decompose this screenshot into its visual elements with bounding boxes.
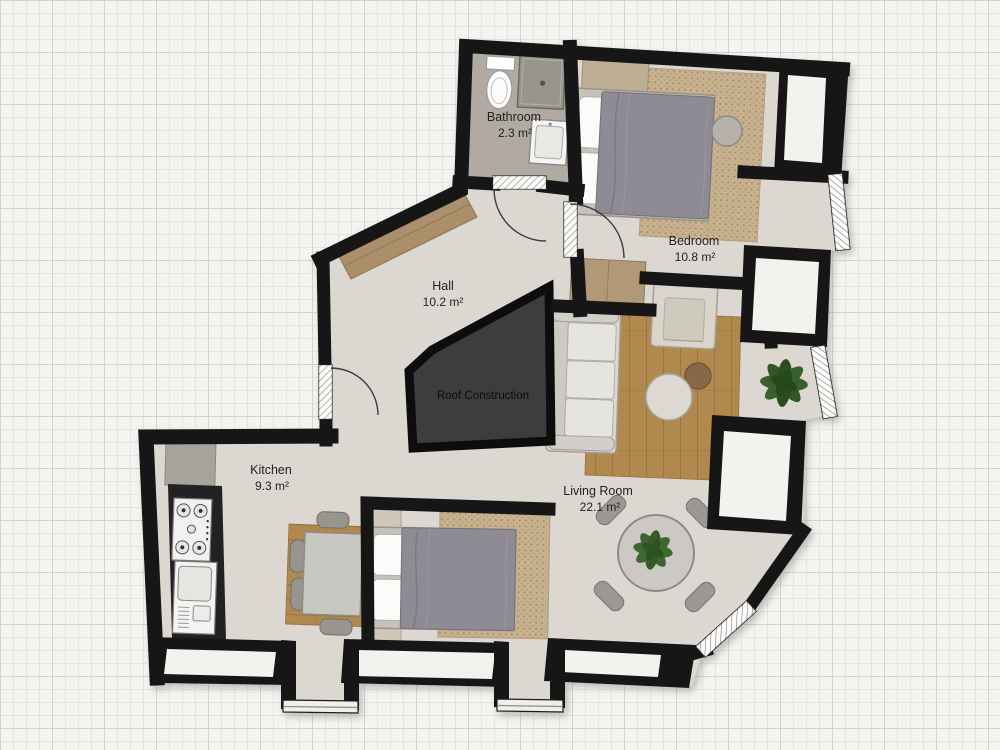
bedroom-window-niche	[784, 75, 826, 163]
kitchen-area: 9.3 m²	[255, 479, 289, 493]
armchair	[651, 282, 718, 349]
right-window-niche-3	[719, 431, 791, 521]
bottom-center-niche	[354, 650, 495, 679]
hall-area: 10.2 m²	[423, 295, 464, 309]
living-room-label: Living Room	[563, 484, 632, 498]
sofa	[546, 305, 621, 453]
bathroom-area: 2.3 m²	[498, 126, 532, 140]
bathroom-label: Bathroom	[487, 110, 541, 124]
stove	[172, 498, 212, 561]
kitchen-sink-unit	[172, 561, 216, 634]
window-bottom-small-2	[497, 699, 563, 712]
bedroom-label: Bedroom	[669, 234, 720, 248]
kitchen-label: Kitchen	[250, 463, 292, 477]
plan-body	[146, 40, 850, 713]
alcove-bed	[366, 527, 516, 631]
kitchen-dining-table	[302, 532, 363, 616]
coffee-table	[646, 374, 692, 420]
hall-label: Hall	[432, 279, 454, 293]
floor-plan: Bathroom 2.3 m² Bedroom 10.8 m² Hall 10.…	[0, 0, 1000, 750]
shower	[517, 55, 566, 109]
living-room-area: 22.1 m²	[580, 500, 621, 514]
bedroom-bed	[568, 88, 714, 221]
bedroom-pouf	[712, 116, 742, 146]
right-window-niche-2	[752, 258, 819, 334]
roof-construction-label: Roof Construction	[437, 390, 529, 402]
bathroom-sink	[529, 119, 569, 165]
window-bottom-small-1	[283, 700, 358, 713]
bedroom-area: 10.8 m²	[675, 250, 716, 264]
kitchen-bay-niche	[164, 649, 276, 677]
